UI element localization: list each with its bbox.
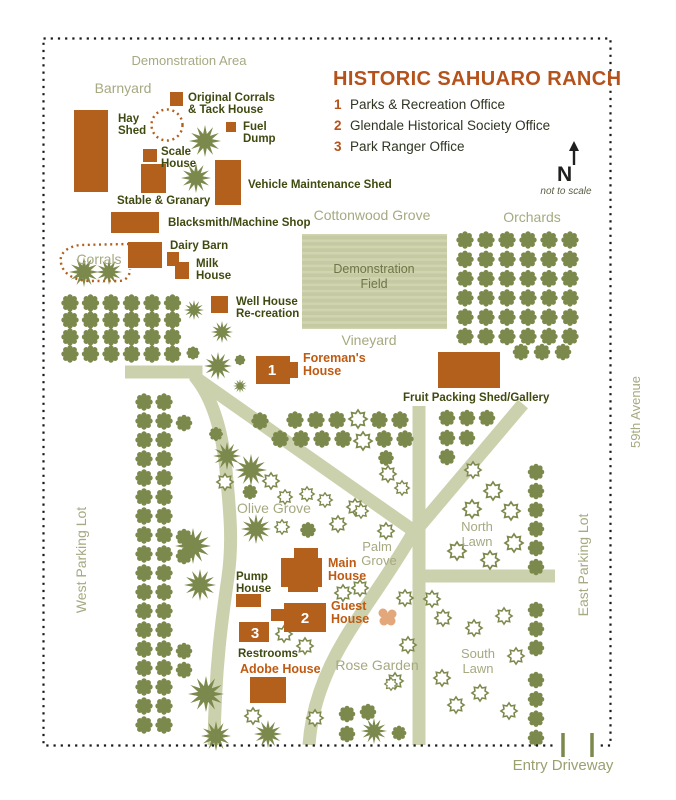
south-lawn-label-1: South — [461, 646, 495, 661]
orchard-northeast-extra-row — [513, 344, 572, 361]
legend-1-label: Parks & Recreation Office — [350, 97, 505, 112]
pump-house-label-2: House — [236, 583, 271, 595]
blacksmith-label: Blacksmith/Machine Shop — [168, 217, 311, 229]
dairy-barn — [128, 242, 162, 268]
milk-house-label-1: Milk — [196, 258, 219, 270]
milk-house-label-2: House — [196, 270, 231, 282]
not-to-scale-note: not to scale — [540, 186, 592, 197]
palm-grove-cluster — [439, 410, 496, 427]
vineyard-tree-row-2b — [375, 430, 413, 447]
marker-1: 1 — [268, 362, 276, 379]
north-lawn-label-2: Lawn — [461, 534, 492, 549]
foremans-house — [256, 356, 298, 384]
dairy-barn-label: Dairy Barn — [170, 240, 228, 252]
hay-shed-label-2: Shed — [118, 125, 146, 137]
tack-house — [170, 92, 183, 106]
marker-3: 3 — [251, 625, 259, 642]
west-parking-label: West Parking Lot — [73, 507, 89, 613]
hay-shed — [74, 110, 108, 192]
north-lawn-label-1: North — [461, 519, 493, 534]
fuel-dump-label-1: Fuel — [243, 121, 267, 133]
tack-house-label-1: Original Corrals — [188, 92, 275, 104]
guest-house — [271, 603, 326, 632]
demonstration-area-label: Demonstration Area — [132, 53, 248, 68]
fruit-packing-shed — [438, 352, 500, 388]
vehicle-shed-label: Vehicle Maintenance Shed — [248, 179, 392, 191]
north-letter: N — [557, 163, 572, 186]
fuel-dump — [226, 122, 236, 132]
main-house — [281, 548, 322, 592]
pump-house-label-1: Pump — [236, 571, 268, 583]
corrals-label: Corrals — [76, 251, 121, 267]
scale-house-label-2: House — [161, 158, 196, 170]
well-house — [211, 296, 228, 313]
main-house-label-1: Main — [328, 556, 356, 570]
demonstration-field-label-1: Demonstration — [333, 262, 414, 276]
stable-granary-label: Stable & Granary — [117, 195, 211, 207]
map-canvas: Demonstration Field — [0, 0, 676, 800]
east-tree-column-low — [528, 672, 545, 746]
guest-house-label-1: Guest — [331, 599, 367, 613]
barnyard-label: Barnyard — [95, 80, 152, 96]
vehicle-maintenance-shed — [215, 160, 241, 205]
vineyard-tree-row-1a — [286, 411, 345, 428]
adobe-house-label: Adobe House — [240, 662, 321, 676]
main-house-label-2: House — [328, 569, 366, 583]
palm-grove-label-2: Grove — [361, 553, 396, 568]
olive-grove-label: Olive Grove — [237, 500, 311, 516]
demonstration-field: Demonstration Field — [302, 234, 447, 329]
adobe-house — [250, 677, 286, 703]
orchards-label: Orchards — [503, 209, 561, 225]
palm-grove-label-1: Palm — [362, 539, 392, 554]
legend-3-label: Park Ranger Office — [350, 139, 465, 154]
north-arrow-head — [569, 141, 579, 151]
west-tree-rows — [135, 393, 172, 733]
foremans-label-2: House — [303, 364, 341, 378]
street-label: 59th Avenue — [628, 376, 643, 448]
orchard-northeast — [456, 231, 578, 345]
rose-flower — [379, 609, 397, 626]
demonstration-field-label-2: Field — [360, 277, 387, 291]
north-lawn-tree-column — [528, 464, 545, 576]
marker-2: 2 — [301, 610, 309, 627]
scale-house-label-1: Scale — [161, 146, 191, 158]
palm-grove-cluster-2 — [439, 430, 476, 447]
legend-1-num: 1 — [334, 97, 342, 112]
blacksmith-shop — [111, 212, 159, 233]
milk-house-2 — [175, 262, 189, 279]
sahuaro-ranch-map: Demonstration Field — [0, 0, 676, 800]
fruit-packing-label: Fruit Packing Shed/Gallery — [403, 392, 550, 404]
entry-driveway-label: Entry Driveway — [513, 757, 614, 774]
map-header: HISTORIC SAHUARO RANCH 1 Parks & Recreat… — [333, 68, 621, 154]
well-house-label-1: Well House — [236, 296, 298, 308]
vineyard-label: Vineyard — [341, 332, 396, 348]
legend-2-num: 2 — [334, 118, 342, 133]
vineyard-tree-row-1b — [370, 411, 408, 428]
orchard-northwest — [61, 294, 181, 362]
south-lawn-label-2: Lawn — [462, 661, 493, 676]
map-title: HISTORIC SAHUARO RANCH — [333, 68, 621, 90]
foremans-label-1: Foreman's — [303, 351, 366, 365]
tack-house-label-2: & Tack House — [188, 104, 263, 116]
fuel-dump-label-2: Dump — [243, 133, 276, 145]
pump-house — [236, 594, 261, 607]
cottonwood-grove-label: Cottonwood Grove — [314, 207, 431, 223]
compass: N not to scale — [540, 141, 592, 197]
hay-shed-label-1: Hay — [118, 113, 140, 125]
rose-garden-label: Rose Garden — [335, 657, 418, 673]
guest-house-label-2: House — [331, 612, 369, 626]
east-parking-label: East Parking Lot — [575, 514, 591, 617]
scale-house — [143, 149, 157, 162]
east-tree-column-mid — [528, 602, 545, 657]
legend-3-num: 3 — [334, 139, 342, 154]
well-house-label-2: Re-creation — [236, 308, 299, 320]
legend-2-label: Glendale Historical Society Office — [350, 118, 550, 133]
restrooms-label: Restrooms — [238, 648, 298, 660]
vineyard-tree-row-2a — [271, 430, 351, 447]
tack-house-corral-outline — [152, 110, 183, 141]
